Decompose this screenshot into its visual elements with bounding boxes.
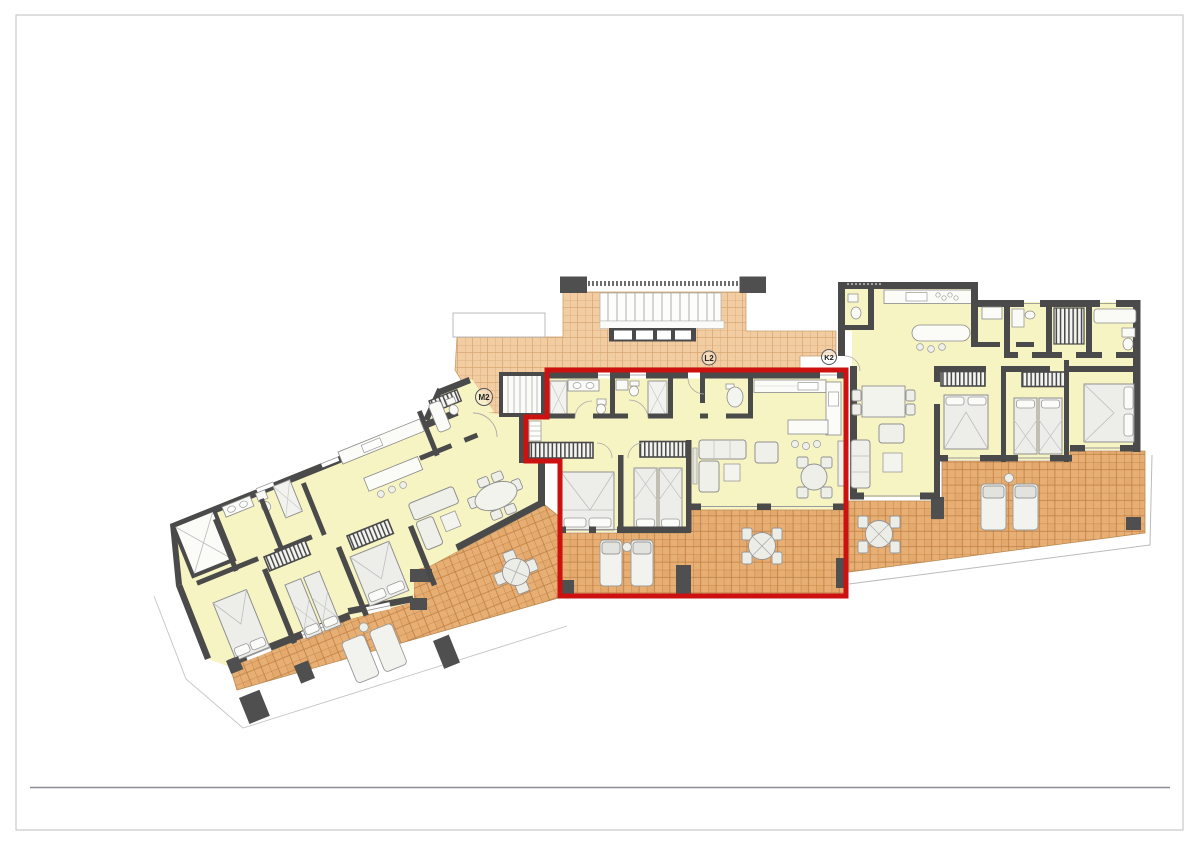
svg-text:L2: L2 bbox=[704, 354, 714, 363]
svg-text:M2: M2 bbox=[478, 393, 490, 402]
svg-text:K2: K2 bbox=[824, 353, 834, 362]
